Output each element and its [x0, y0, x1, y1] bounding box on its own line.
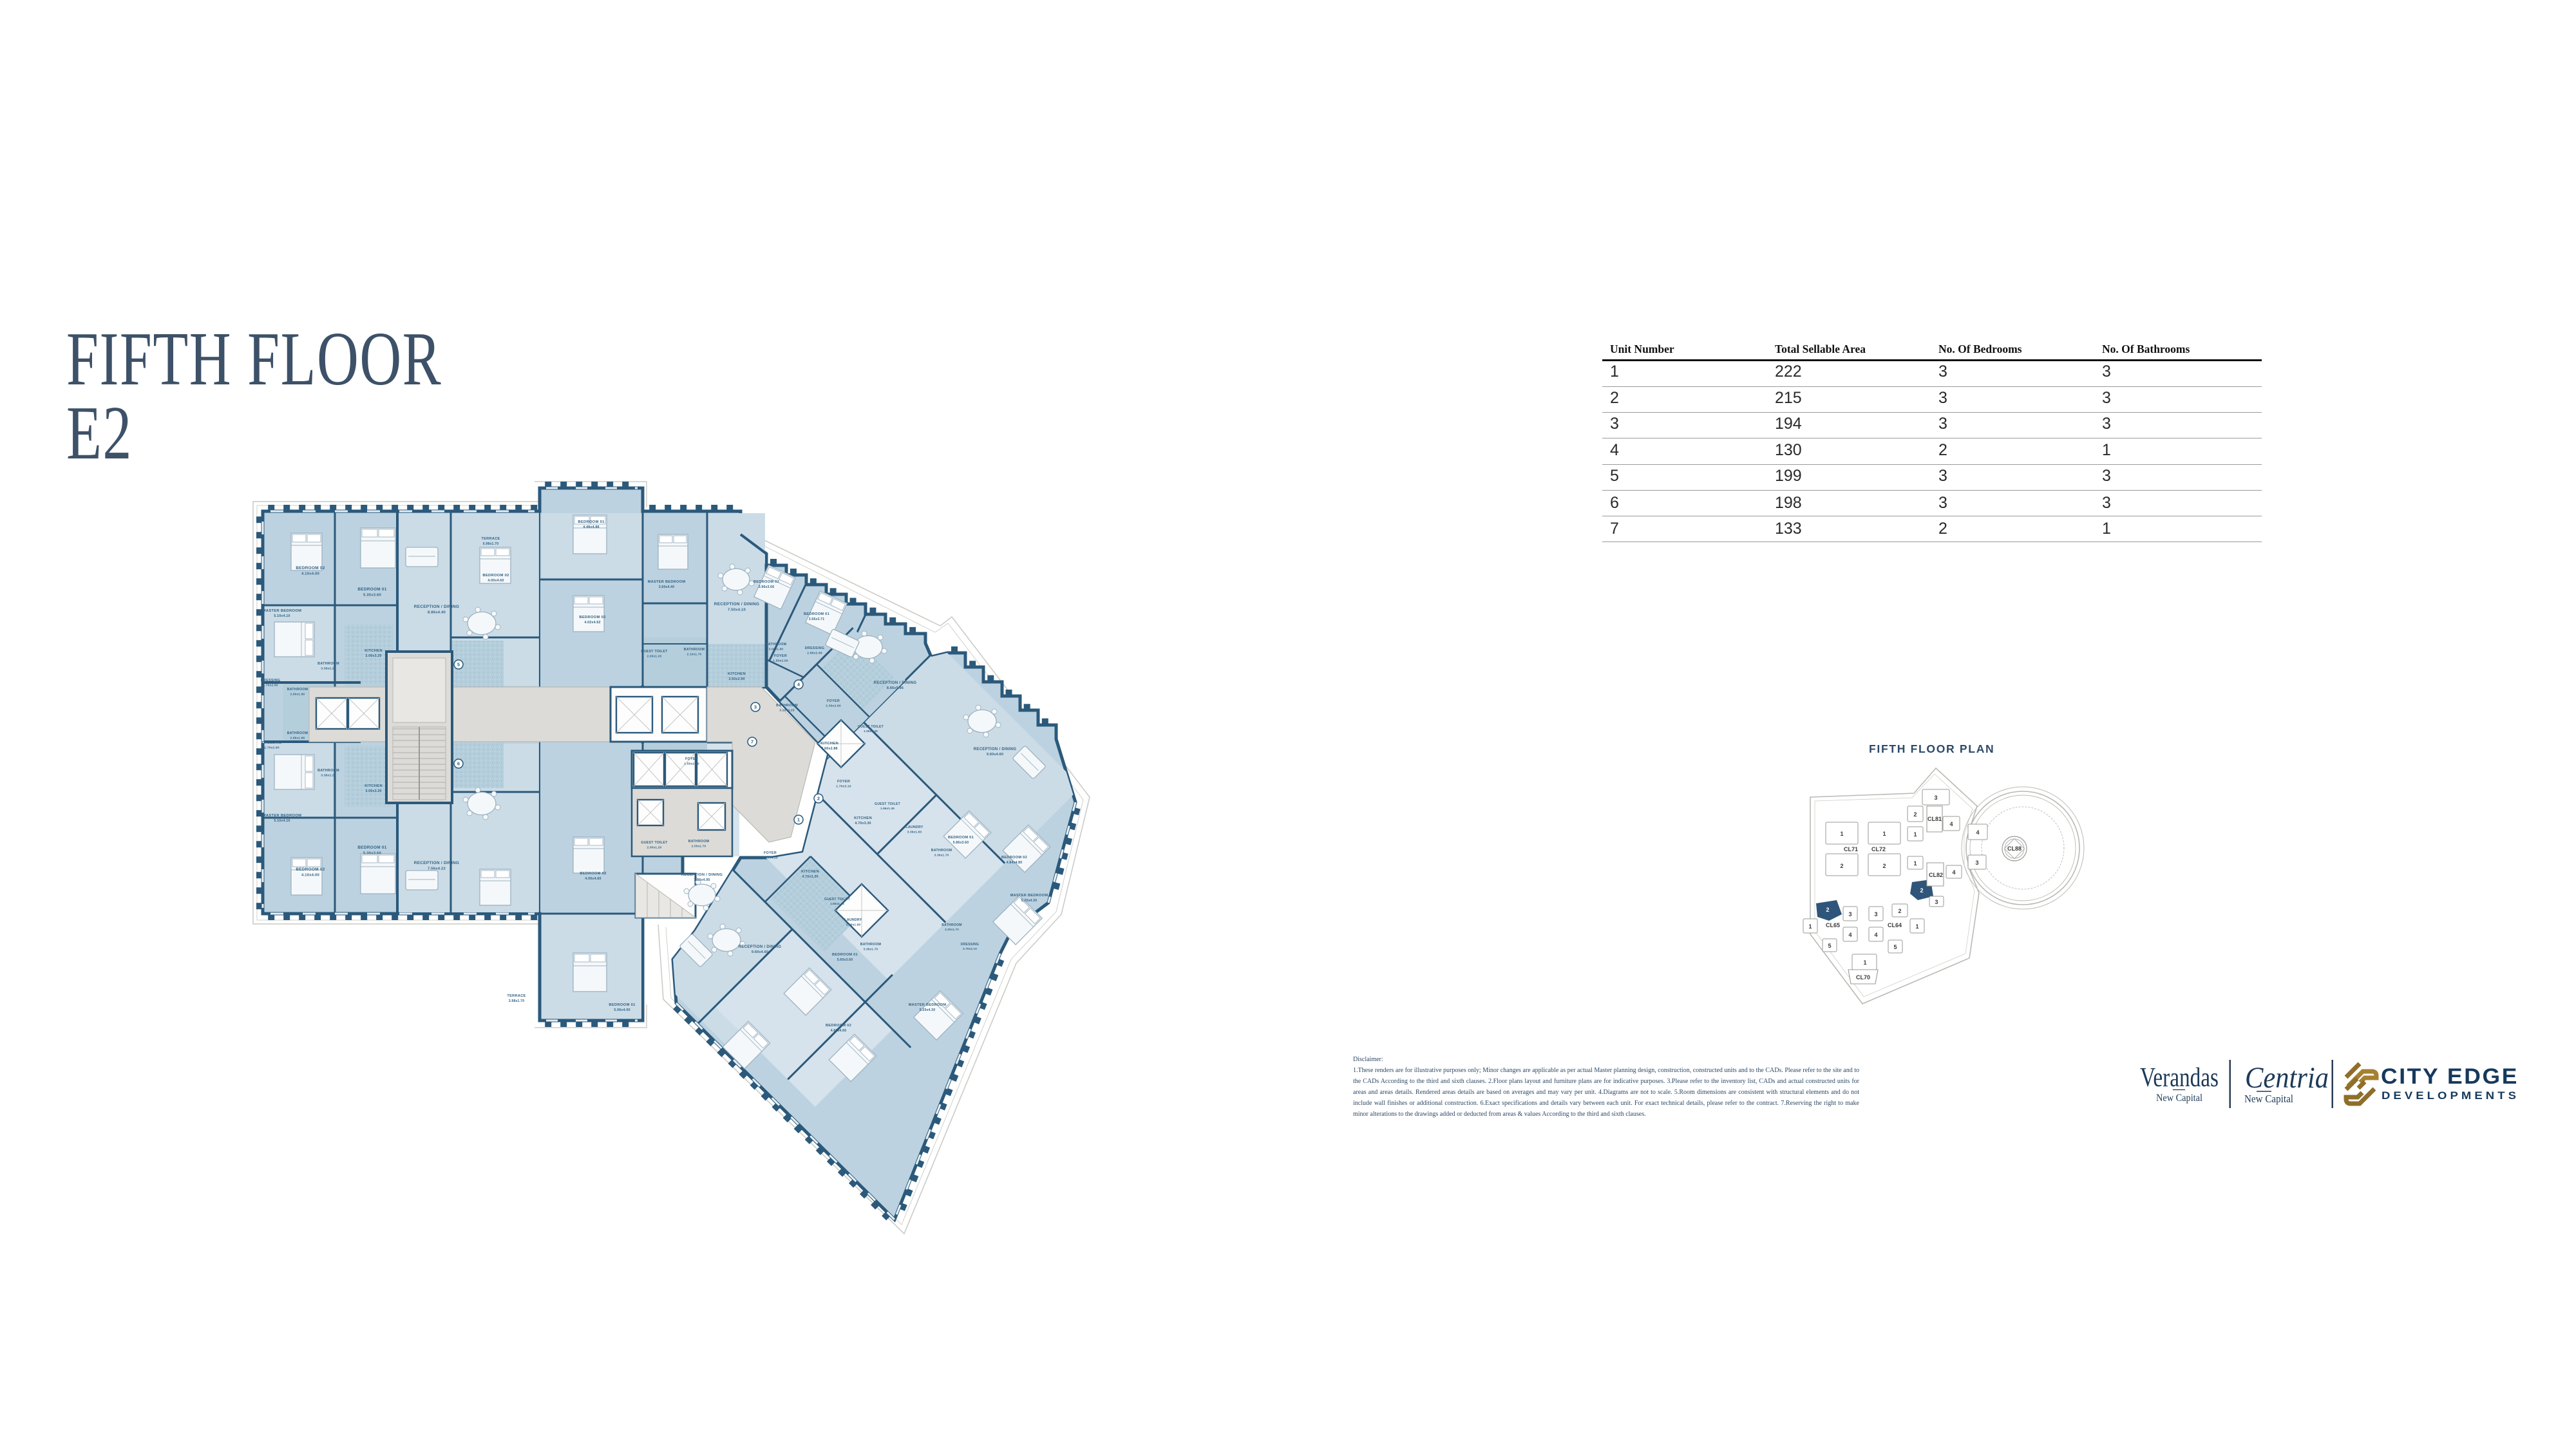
svg-text:5.10x4.10: 5.10x4.10 — [274, 614, 290, 618]
svg-text:9.60x4.60: 9.60x4.60 — [987, 753, 1003, 757]
svg-text:2: 2 — [1826, 907, 1829, 913]
svg-text:DRESSING: DRESSING — [261, 679, 281, 683]
svg-text:1.50x2.10: 1.50x2.10 — [684, 762, 699, 766]
svg-text:1.70x4.10: 1.70x4.10 — [762, 856, 778, 860]
svg-text:2.70x2.10: 2.70x2.10 — [963, 947, 977, 950]
svg-text:DRESSING: DRESSING — [961, 943, 980, 946]
svg-text:4.10x4.00: 4.10x4.00 — [301, 572, 320, 576]
svg-text:0.98x1.70: 0.98x1.70 — [483, 542, 498, 546]
svg-text:MASTER BEDROOM: MASTER BEDROOM — [1010, 894, 1048, 898]
svg-text:BEDROOM 01: BEDROOM 01 — [804, 612, 829, 616]
svg-text:Centria: Centria — [2245, 1061, 2329, 1095]
svg-text:FOYER: FOYER — [774, 654, 787, 658]
svg-text:3.38x2.20: 3.38x2.20 — [321, 667, 336, 671]
svg-text:BEDROOM 01: BEDROOM 01 — [832, 953, 858, 957]
svg-text:1: 1 — [1915, 923, 1918, 930]
svg-text:New Capital: New Capital — [2244, 1093, 2293, 1105]
svg-text:4: 4 — [1949, 821, 1953, 827]
svg-text:MASTER BEDROOM: MASTER BEDROOM — [648, 580, 686, 584]
svg-text:2.60x1.80: 2.60x1.80 — [290, 692, 305, 695]
svg-text:1: 1 — [1913, 860, 1917, 867]
svg-text:2.00x1.20: 2.00x1.20 — [647, 654, 662, 657]
svg-text:CL88: CL88 — [2007, 845, 2022, 852]
svg-text:3.60x4.40: 3.60x4.40 — [659, 585, 674, 589]
svg-text:7.50x4.10: 7.50x4.10 — [728, 608, 746, 612]
svg-text:1: 1 — [1913, 831, 1917, 838]
svg-text:7: 7 — [751, 739, 753, 745]
svg-text:2.66x1.86: 2.66x1.86 — [290, 736, 305, 739]
svg-text:3.98x1.70: 3.98x1.70 — [509, 999, 524, 1003]
svg-text:1: 1 — [1808, 923, 1812, 930]
svg-text:LAUNDRY: LAUNDRY — [844, 918, 862, 922]
svg-text:CL81: CL81 — [1927, 816, 1942, 822]
svg-text:BEDROOM 01: BEDROOM 01 — [357, 587, 386, 592]
svg-text:3.96x3.66: 3.96x3.66 — [759, 585, 774, 589]
svg-text:CL71: CL71 — [1844, 846, 1858, 852]
svg-text:BEDROOM 02: BEDROOM 02 — [296, 566, 325, 570]
svg-text:BEDROOM 02: BEDROOM 02 — [580, 872, 606, 876]
svg-text:KITCHEN: KITCHEN — [365, 649, 383, 653]
svg-text:2.70x2.90: 2.70x2.90 — [263, 684, 278, 688]
svg-text:5: 5 — [1893, 944, 1897, 950]
svg-text:LAUNDRY: LAUNDRY — [905, 825, 923, 829]
svg-text:DEVELOPMENTS: DEVELOPMENTS — [2382, 1090, 2519, 1102]
svg-text:4.70x3.30: 4.70x3.30 — [855, 822, 871, 825]
svg-text:1.56x1.45: 1.56x1.45 — [880, 807, 895, 810]
svg-text:KITCHEN: KITCHEN — [728, 672, 746, 676]
svg-text:BATHROOM: BATHROOM — [776, 704, 798, 708]
svg-text:KITCHEN: KITCHEN — [854, 816, 872, 820]
svg-text:BEDROOM 01: BEDROOM 01 — [578, 520, 605, 524]
svg-text:CL65: CL65 — [1826, 922, 1840, 928]
svg-text:1.50x2.00: 1.50x2.00 — [773, 659, 788, 663]
svg-text:5.60x3.60: 5.60x3.60 — [837, 958, 853, 962]
svg-text:2: 2 — [1882, 863, 1886, 869]
svg-text:3: 3 — [1934, 795, 1937, 801]
svg-text:BATHROOM: BATHROOM — [287, 731, 308, 735]
svg-text:4.84x4.80: 4.84x4.80 — [1007, 861, 1022, 865]
svg-text:4.60x4.66: 4.60x4.66 — [831, 1029, 846, 1033]
svg-text:RECEPTION / DINING: RECEPTION / DINING — [739, 945, 781, 949]
svg-text:4: 4 — [1874, 932, 1877, 938]
svg-text:2: 2 — [1840, 863, 1843, 869]
svg-text:MASTER BEDROOM: MASTER BEDROOM — [909, 1003, 947, 1007]
svg-text:3: 3 — [754, 704, 757, 710]
svg-text:5.30x3.60: 5.30x3.60 — [363, 594, 382, 598]
svg-text:CITY EDGE: CITY EDGE — [2381, 1064, 2519, 1089]
svg-text:8.66x5.86: 8.66x5.86 — [887, 686, 904, 690]
svg-text:BEDROOM 02: BEDROOM 02 — [753, 580, 779, 584]
svg-text:KITCHEN: KITCHEN — [801, 870, 819, 874]
svg-text:4: 4 — [1952, 869, 1955, 876]
svg-text:3.50x2.90: 3.50x2.90 — [728, 677, 744, 681]
svg-text:BATHROOM: BATHROOM — [287, 688, 308, 692]
svg-text:BATHROOM: BATHROOM — [942, 923, 961, 927]
svg-text:1: 1 — [1882, 831, 1886, 837]
svg-text:3: 3 — [1975, 860, 1978, 866]
svg-text:3.36x1.60: 3.36x1.60 — [846, 923, 861, 926]
svg-text:3.20x3.25: 3.20x3.25 — [779, 709, 795, 713]
svg-text:1: 1 — [1840, 831, 1843, 837]
svg-text:1: 1 — [1863, 959, 1866, 966]
svg-text:TERRACE: TERRACE — [481, 537, 500, 541]
svg-text:5: 5 — [457, 662, 460, 668]
svg-text:5: 5 — [1828, 943, 1831, 949]
svg-text:2: 2 — [1913, 811, 1917, 818]
svg-text:1.06x1.35: 1.06x1.35 — [864, 730, 878, 733]
svg-text:3.20x1.70: 3.20x1.70 — [945, 928, 959, 931]
svg-text:FOYER: FOYER — [837, 780, 850, 784]
svg-text:BATHROOM: BATHROOM — [931, 849, 952, 852]
svg-text:3.00x1.80: 3.00x1.80 — [769, 647, 784, 650]
svg-text:RECEPTION / DINING: RECEPTION / DINING — [414, 861, 459, 865]
svg-text:3.36x1.70: 3.36x1.70 — [934, 853, 949, 856]
svg-text:BEDROOM 02: BEDROOM 02 — [1001, 856, 1027, 860]
svg-text:8.86x4.40: 8.86x4.40 — [428, 611, 446, 615]
svg-text:2.30x2.60: 2.30x2.60 — [826, 704, 841, 708]
svg-text:4: 4 — [1976, 829, 1979, 836]
svg-text:4.70x3.30: 4.70x3.30 — [802, 875, 818, 879]
svg-text:1.56x1.45: 1.56x1.45 — [830, 902, 844, 905]
svg-text:BATHROOM: BATHROOM — [688, 840, 710, 843]
svg-text:6: 6 — [457, 761, 460, 767]
svg-text:2.10x1.70: 2.10x1.70 — [687, 652, 702, 655]
svg-text:BEDROOM 01: BEDROOM 01 — [357, 845, 386, 850]
svg-text:2.86x2.46: 2.86x2.46 — [807, 652, 822, 655]
svg-text:2.70x2.90: 2.70x2.90 — [264, 746, 279, 750]
svg-text:5.20x4.30: 5.20x4.30 — [1021, 899, 1037, 903]
svg-text:2: 2 — [1898, 908, 1901, 914]
svg-text:5.06x4.00: 5.06x4.00 — [614, 1008, 630, 1012]
svg-text:1: 1 — [797, 817, 800, 823]
svg-text:3.56x3.71: 3.56x3.71 — [809, 617, 824, 621]
svg-text:3.00x3.20: 3.00x3.20 — [365, 654, 381, 658]
svg-text:BATHROOM: BATHROOM — [684, 648, 705, 652]
svg-text:BATHROOM: BATHROOM — [317, 662, 339, 666]
svg-text:BATHROOM: BATHROOM — [766, 643, 787, 646]
svg-text:RECEPTION / DINING: RECEPTION / DINING — [874, 681, 916, 685]
svg-text:BEDROOM 02: BEDROOM 02 — [296, 867, 325, 872]
svg-text:Verandas: Verandas — [2140, 1063, 2219, 1093]
svg-text:2.00x1.20: 2.00x1.20 — [647, 845, 662, 849]
svg-text:4.02x4.62: 4.02x4.62 — [584, 621, 600, 625]
svg-text:4.00x4.60: 4.00x4.60 — [488, 579, 504, 583]
svg-text:5.10x4.10: 5.10x4.10 — [274, 819, 290, 823]
svg-text:5.30x3.60: 5.30x3.60 — [363, 852, 382, 856]
svg-text:1.70x3.10: 1.70x3.10 — [836, 785, 851, 789]
svg-text:TERRACE: TERRACE — [507, 994, 526, 998]
svg-text:BEDROOM 02: BEDROOM 02 — [826, 1024, 851, 1028]
svg-text:BEDROOM 02: BEDROOM 02 — [482, 574, 509, 578]
svg-text:CL64: CL64 — [1888, 922, 1902, 928]
svg-text:RECEPTION / DINING: RECEPTION / DINING — [681, 873, 723, 877]
svg-text:3: 3 — [1848, 911, 1851, 918]
svg-text:2.00x1.70: 2.00x1.70 — [692, 844, 706, 847]
svg-text:KITCHEN: KITCHEN — [365, 784, 383, 788]
svg-text:RECEPTION / DINING: RECEPTION / DINING — [974, 748, 1016, 751]
svg-text:BEDROOM 02: BEDROOM 02 — [579, 616, 605, 619]
svg-text:RECEPTION / DINING: RECEPTION / DINING — [714, 602, 759, 607]
svg-text:9.60x4.60: 9.60x4.60 — [752, 950, 768, 954]
svg-text:DRESSING: DRESSING — [805, 646, 825, 650]
svg-text:CL70: CL70 — [1856, 974, 1870, 981]
svg-text:MASTER BEDROOM: MASTER BEDROOM — [263, 609, 302, 613]
svg-text:FOYER: FOYER — [685, 757, 698, 761]
svg-text:5.20x4.30: 5.20x4.30 — [920, 1008, 935, 1012]
svg-text:2: 2 — [1920, 887, 1923, 894]
svg-text:RECEPTION / DINING: RECEPTION / DINING — [414, 605, 459, 609]
svg-text:BEDROOM 01: BEDROOM 01 — [609, 1003, 636, 1007]
svg-text:3: 3 — [1874, 911, 1877, 918]
svg-text:BATHROOM: BATHROOM — [860, 943, 882, 946]
svg-text:7.56x4.22: 7.56x4.22 — [428, 867, 446, 871]
svg-text:New Capital: New Capital — [2156, 1093, 2202, 1104]
svg-text:4.48x4.88: 4.48x4.88 — [583, 525, 599, 529]
svg-text:FOYER: FOYER — [764, 851, 777, 855]
svg-text:3.36x1.70: 3.36x1.70 — [864, 947, 878, 950]
svg-text:3.36x1.60: 3.36x1.60 — [907, 830, 922, 833]
svg-text:4: 4 — [1848, 932, 1851, 938]
svg-text:2: 2 — [817, 796, 820, 802]
svg-text:4.10x4.00: 4.10x4.00 — [301, 874, 320, 878]
svg-text:GUEST TOILET: GUEST TOILET — [858, 725, 884, 729]
svg-text:3.38x2.20: 3.38x2.20 — [321, 774, 336, 778]
svg-text:GUEST TOILET: GUEST TOILET — [824, 898, 850, 901]
svg-text:DRESSING: DRESSING — [262, 741, 282, 745]
svg-text:GUEST TOILET: GUEST TOILET — [641, 841, 668, 845]
svg-text:7.50x4.95: 7.50x4.95 — [694, 878, 710, 882]
svg-text:BATHROOM: BATHROOM — [317, 769, 339, 773]
svg-text:BEDROOM 01: BEDROOM 01 — [948, 836, 974, 840]
svg-text:KITCHEN: KITCHEN — [820, 742, 838, 746]
svg-text:CL72: CL72 — [1871, 846, 1886, 852]
svg-text:GUEST TOILET: GUEST TOILET — [641, 650, 668, 654]
svg-text:4.00x4.60: 4.00x4.60 — [585, 877, 601, 881]
svg-text:GUEST TOILET: GUEST TOILET — [875, 802, 900, 806]
svg-text:5.86x3.60: 5.86x3.60 — [953, 841, 969, 845]
svg-text:3.60x2.88: 3.60x2.88 — [821, 747, 837, 751]
svg-text:3.00x3.20: 3.00x3.20 — [365, 789, 381, 793]
svg-text:CL82: CL82 — [1929, 872, 1943, 878]
svg-text:MASTER BEDROOM: MASTER BEDROOM — [263, 814, 302, 818]
svg-text:3: 3 — [1935, 899, 1938, 905]
svg-text:FOYER: FOYER — [827, 699, 840, 703]
